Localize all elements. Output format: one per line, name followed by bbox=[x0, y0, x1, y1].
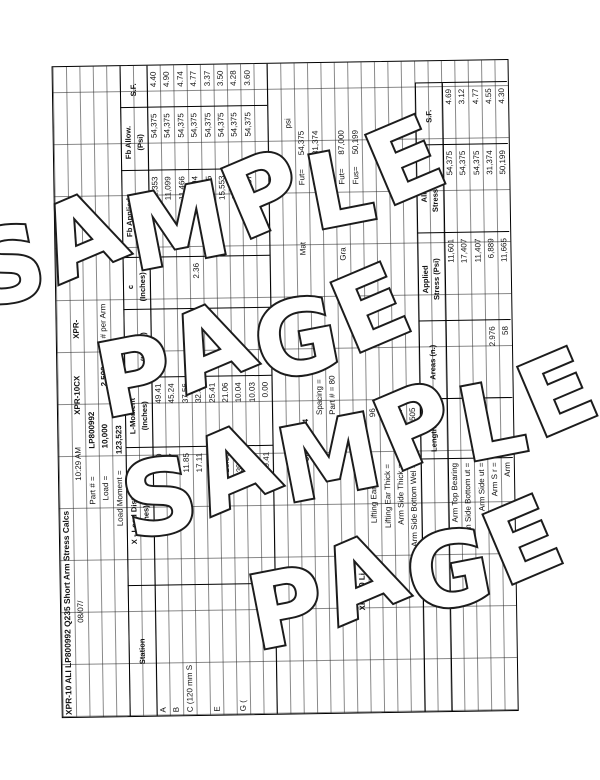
allow-stress: 54,375 bbox=[469, 150, 484, 232]
sf: 4.30 bbox=[494, 88, 508, 144]
hdr-fbl1: Fb Allow. bbox=[122, 114, 134, 171]
sf: 3.12 bbox=[455, 89, 469, 145]
sheet-title: XPR-10 ALI LP800992 Q235 Short Arm Stres… bbox=[59, 511, 76, 715]
sf: 4.74 bbox=[173, 71, 187, 107]
hdr-fbl2: (Psi) bbox=[133, 114, 145, 171]
load-label: Load = bbox=[99, 476, 113, 501]
applied-stress: 11,665 bbox=[496, 238, 511, 320]
allow-stress: 50,199 bbox=[495, 150, 510, 232]
hdr-sf: S.F. bbox=[127, 72, 139, 108]
print-time: 10:29 AM bbox=[71, 447, 85, 481]
sf: 4.69 bbox=[441, 89, 455, 145]
table2-col-line bbox=[414, 81, 506, 83]
sf bbox=[253, 70, 267, 106]
sf: 3.50 bbox=[213, 70, 227, 106]
fb-allow: 54,375 bbox=[160, 113, 174, 170]
hdr-station: Station bbox=[135, 590, 148, 713]
psi-label: psi bbox=[281, 118, 295, 128]
sf: 3.60 bbox=[240, 70, 254, 106]
sf: 4.90 bbox=[160, 71, 174, 107]
sf: 4.77 bbox=[186, 71, 200, 107]
print-date: 08/07/ bbox=[74, 600, 88, 622]
fb-allow: 54,375 bbox=[174, 113, 188, 170]
sf: 4.77 bbox=[468, 88, 482, 144]
sf: 4.40 bbox=[146, 72, 160, 108]
sf: 3.37 bbox=[200, 71, 214, 107]
part-label: Part # = bbox=[85, 476, 99, 504]
fb-allow: 54,375 bbox=[147, 114, 161, 171]
sf: 4.28 bbox=[227, 70, 241, 106]
